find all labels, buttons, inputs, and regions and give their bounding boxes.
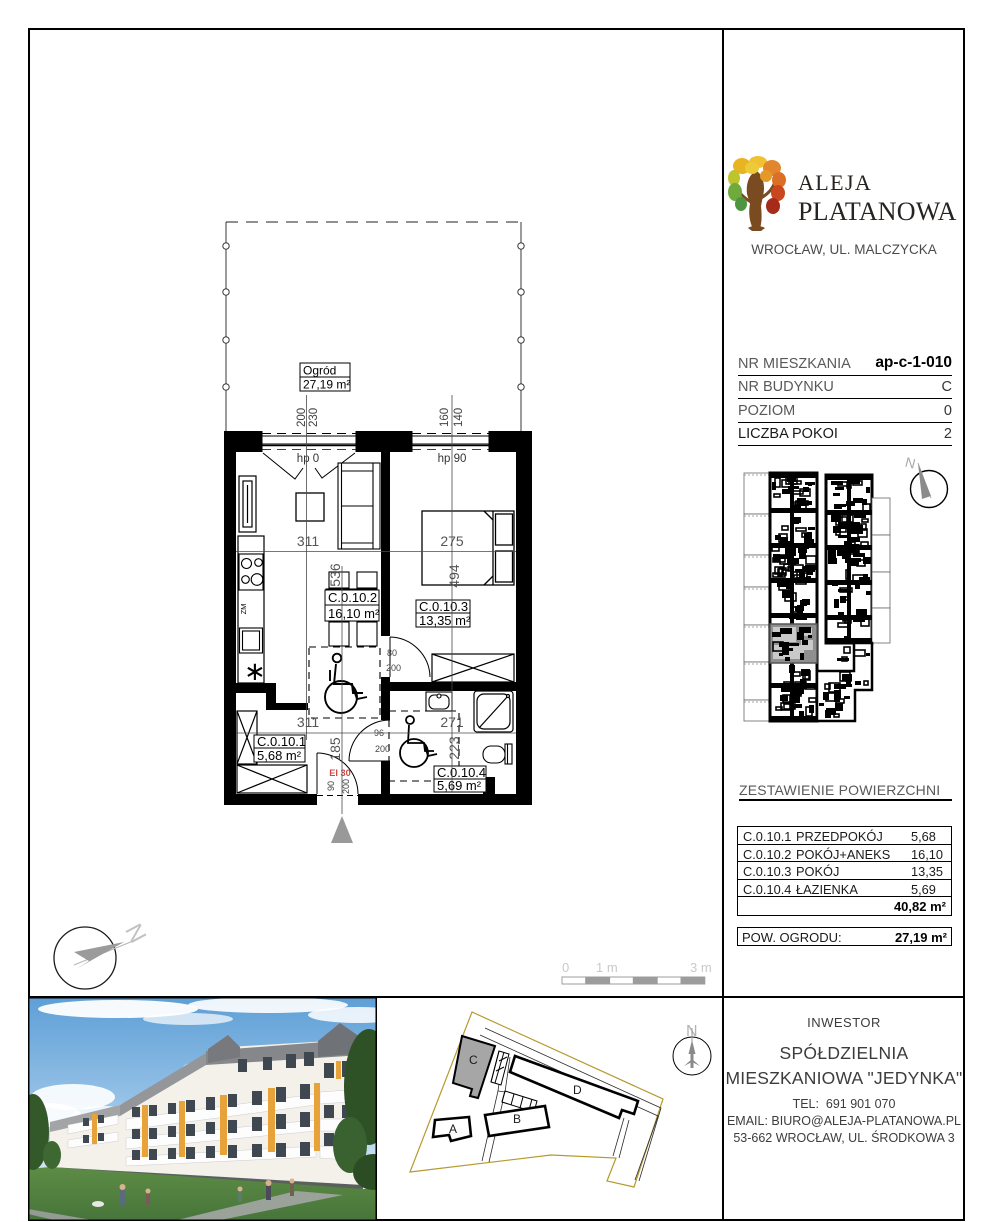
svg-text:230: 230: [308, 408, 320, 427]
svg-text:27,19 m²: 27,19 m²: [303, 378, 350, 392]
svg-text:Ogród: Ogród: [303, 364, 336, 378]
svg-text:C.0.10.3: C.0.10.3: [419, 599, 468, 614]
svg-text:hp 0: hp 0: [297, 453, 319, 465]
svg-text:200: 200: [386, 663, 401, 673]
svg-text:311: 311: [297, 533, 320, 549]
svg-text:200: 200: [341, 779, 351, 794]
svg-text:∗: ∗: [244, 656, 266, 686]
svg-text:3 m: 3 m: [690, 960, 712, 975]
svg-text:C.0.10.1: C.0.10.1: [257, 734, 306, 749]
svg-text:5,69 m²: 5,69 m²: [437, 778, 482, 793]
svg-text:N: N: [119, 919, 150, 947]
svg-text:160: 160: [439, 408, 451, 427]
svg-text:90: 90: [326, 781, 336, 791]
svg-text:185: 185: [327, 737, 343, 761]
svg-text:B: B: [513, 1112, 521, 1126]
svg-text:EI 30: EI 30: [329, 768, 350, 778]
svg-text:C.0.10.2: C.0.10.2: [328, 590, 377, 605]
svg-text:80: 80: [387, 648, 397, 658]
svg-text:A: A: [449, 1122, 457, 1136]
svg-text:ZM: ZM: [239, 604, 248, 615]
svg-text:5,68 m²: 5,68 m²: [257, 748, 302, 763]
svg-text:311: 311: [297, 714, 320, 730]
svg-text:16,10 m²: 16,10 m²: [328, 606, 380, 621]
svg-text:140: 140: [453, 408, 465, 427]
svg-text:D: D: [573, 1083, 582, 1097]
svg-text:1 m: 1 m: [596, 960, 618, 975]
svg-text:494: 494: [446, 564, 462, 588]
svg-text:N: N: [903, 454, 917, 472]
svg-text:536: 536: [327, 563, 343, 587]
svg-text:200: 200: [375, 744, 390, 754]
svg-text:223: 223: [446, 736, 462, 760]
svg-text:0: 0: [562, 960, 569, 975]
svg-text:C: C: [469, 1053, 478, 1067]
svg-text:13,35 m²: 13,35 m²: [419, 613, 471, 628]
